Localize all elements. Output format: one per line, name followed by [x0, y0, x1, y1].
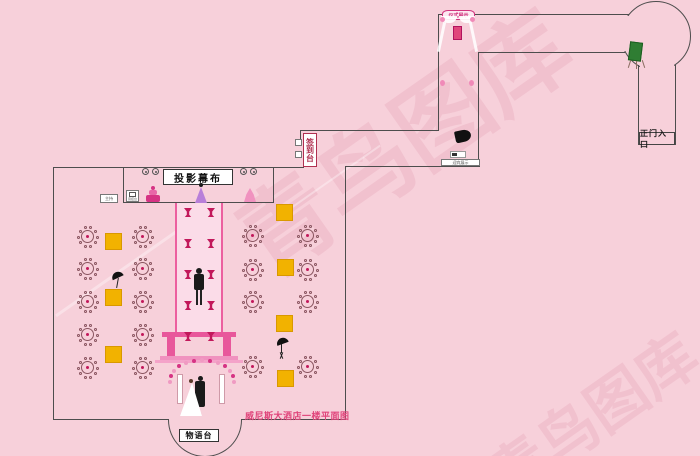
chair [151, 367, 154, 370]
chair [134, 306, 137, 309]
chair [134, 361, 137, 364]
chair [304, 310, 307, 313]
chair [77, 334, 80, 337]
chair [89, 310, 92, 313]
chair [151, 334, 154, 337]
arch-flower [184, 361, 188, 365]
chair [254, 278, 257, 281]
chair [259, 274, 262, 277]
flower-gate-pillar [167, 337, 175, 357]
chair [249, 259, 252, 262]
chair [96, 334, 99, 337]
main-entrance-label: 正门入口 [639, 132, 675, 145]
signin-corridor-bottom-wall [345, 166, 480, 167]
chair [139, 277, 142, 280]
chair [244, 306, 247, 309]
chair [89, 258, 92, 261]
sound-box-label: 音控台 [128, 197, 137, 201]
arch-flower [216, 361, 220, 365]
corridor-bottom-wall [478, 52, 625, 53]
chair [94, 273, 97, 276]
chair [261, 269, 264, 272]
chair [259, 360, 262, 363]
hall-right-wall [345, 167, 346, 420]
chair [297, 269, 300, 272]
chair [144, 343, 147, 346]
speaker-icon [240, 168, 247, 175]
chair [84, 258, 87, 261]
arch-flower [231, 374, 235, 378]
sofa-seat [105, 346, 122, 363]
vestibule-right-wall [478, 52, 479, 167]
chair [134, 339, 137, 342]
chair [132, 367, 135, 370]
chair [259, 295, 262, 298]
chair [249, 356, 252, 359]
hall-bottom-wall-left [53, 419, 169, 420]
chair [134, 262, 137, 265]
chair [244, 240, 247, 243]
chair [314, 274, 317, 277]
welcome-bar-label: 迎宾展示 [441, 159, 480, 166]
banquet-table [296, 224, 320, 248]
mc-box-label: 主持 [100, 194, 118, 203]
arch-flower [177, 364, 181, 368]
chair [149, 328, 152, 331]
chair [89, 324, 92, 327]
grand-piano-icon [454, 128, 472, 143]
chair [84, 357, 87, 360]
arch-flower [200, 358, 204, 362]
floor-plan-canvas: 青鸟图库 青鸟图库 投影幕布 签到台 正门入口 物语台 威尼斯大酒店一楼平面图 … [0, 0, 700, 456]
chair [314, 240, 317, 243]
chair [134, 230, 137, 233]
chair [309, 225, 312, 228]
chair [316, 366, 319, 369]
chair [244, 360, 247, 363]
chair [249, 278, 252, 281]
chair [79, 339, 82, 342]
sofa-seat [105, 233, 122, 250]
chair [134, 241, 137, 244]
chair [304, 356, 307, 359]
chair [254, 375, 257, 378]
chair [299, 263, 302, 266]
chair [79, 230, 82, 233]
chair [94, 295, 97, 298]
bow-decoration [469, 80, 474, 86]
chair [89, 226, 92, 229]
arch-flower [232, 380, 236, 384]
chair [94, 339, 97, 342]
sound-box: 音控台 [126, 190, 139, 202]
chair [149, 306, 152, 309]
banquet-table [131, 356, 155, 380]
bow-decoration [440, 80, 445, 86]
corridor-top-wall [478, 14, 629, 15]
chair [79, 262, 82, 265]
chair [134, 328, 137, 331]
chair [79, 372, 82, 375]
chair [304, 259, 307, 262]
chair [94, 230, 97, 233]
banquet-table [76, 290, 100, 314]
chair [304, 225, 307, 228]
chair [242, 366, 245, 369]
champagne-tower-icon [244, 188, 256, 202]
chair [314, 306, 317, 309]
chair [249, 225, 252, 228]
chair [309, 291, 312, 294]
chair [96, 367, 99, 370]
stage-left-wall [123, 167, 124, 203]
chair [149, 361, 152, 364]
chair [244, 371, 247, 374]
chair [96, 301, 99, 304]
chair [316, 301, 319, 304]
banquet-table [296, 355, 320, 379]
chair [132, 334, 135, 337]
chair [249, 291, 252, 294]
sofa-seat [105, 289, 122, 306]
stage-bride-gown [195, 187, 207, 203]
banquet-table [76, 225, 100, 249]
arch-pillar [219, 374, 225, 404]
chair [79, 361, 82, 364]
gate-step [155, 360, 243, 363]
chair [261, 366, 264, 369]
chair [139, 258, 142, 261]
banquet-table [241, 224, 265, 248]
chair [144, 277, 147, 280]
groom-figure-leg [200, 290, 202, 305]
chair [94, 372, 97, 375]
chair [314, 360, 317, 363]
banquet-table [76, 257, 100, 281]
chair [249, 310, 252, 313]
arch-flower [192, 359, 196, 363]
chair [89, 343, 92, 346]
chair [242, 269, 245, 272]
chair [96, 236, 99, 239]
chair [79, 241, 82, 244]
chair [249, 375, 252, 378]
chair [144, 357, 147, 360]
banquet-table [131, 290, 155, 314]
sofa-seat [276, 315, 293, 332]
chair [96, 268, 99, 271]
chair [259, 306, 262, 309]
arch-flower [168, 380, 172, 384]
chair [144, 245, 147, 248]
speaker-icon [152, 168, 159, 175]
chair [249, 244, 252, 247]
chair [309, 375, 312, 378]
sofa-seat [277, 370, 294, 387]
story-stage-label: 物语台 [179, 429, 219, 442]
chair [89, 357, 92, 360]
banquet-table [241, 355, 265, 379]
chair [144, 376, 147, 379]
chair [132, 268, 135, 271]
chair [139, 357, 142, 360]
entrance-right-wall [675, 65, 676, 145]
chair [84, 324, 87, 327]
chair [149, 262, 152, 265]
chair [254, 225, 257, 228]
chair [242, 301, 245, 304]
chair [259, 240, 262, 243]
chair [132, 236, 135, 239]
chair [77, 367, 80, 370]
chair [84, 310, 87, 313]
arch-flower [172, 369, 176, 373]
chair [151, 236, 154, 239]
watermark-text: 青鸟图库 [467, 309, 700, 456]
chair [77, 236, 80, 239]
chair [299, 360, 302, 363]
chair [149, 273, 152, 276]
chair [297, 366, 300, 369]
chair [139, 310, 142, 313]
chair [299, 274, 302, 277]
chair [309, 356, 312, 359]
arch-flower [228, 369, 232, 373]
chair [139, 291, 142, 294]
chair [77, 301, 80, 304]
arch-flower [169, 374, 173, 378]
hall-top-wall [53, 167, 304, 168]
chair [94, 262, 97, 265]
chair [254, 259, 257, 262]
chair [139, 343, 142, 346]
arch-bride-figure [189, 379, 193, 383]
banquet-table [241, 290, 265, 314]
chair [314, 229, 317, 232]
groom-figure-leg [196, 290, 198, 305]
chair [314, 263, 317, 266]
sofa-seat [276, 204, 293, 221]
chair [149, 339, 152, 342]
chair [254, 291, 257, 294]
banquet-table [131, 323, 155, 347]
banquet-table [131, 225, 155, 249]
chair [149, 295, 152, 298]
welcome-easel-board [628, 41, 643, 61]
banquet-table [241, 258, 265, 282]
chair [304, 278, 307, 281]
chair [244, 263, 247, 266]
chair [94, 328, 97, 331]
chair [304, 291, 307, 294]
chair [244, 274, 247, 277]
banquet-table [76, 323, 100, 347]
banquet-table [131, 257, 155, 281]
chair [261, 301, 264, 304]
chair [309, 259, 312, 262]
chair [304, 244, 307, 247]
chair [259, 263, 262, 266]
plan-title: 威尼斯大酒店一楼平面图 [245, 409, 350, 422]
chair [94, 361, 97, 364]
chair [254, 244, 257, 247]
projection-screen-label: 投影幕布 [163, 169, 233, 185]
chair [84, 226, 87, 229]
chair [139, 324, 142, 327]
chair [132, 301, 135, 304]
chair [299, 306, 302, 309]
chair [254, 356, 257, 359]
chair [144, 324, 147, 327]
chair [79, 328, 82, 331]
wedding-cake-icon [146, 186, 160, 202]
chair [79, 295, 82, 298]
signin-seat [295, 139, 302, 146]
hall-left-wall [53, 167, 54, 420]
bench-mark [452, 153, 457, 156]
chair [316, 235, 319, 238]
rotunda-left-opening [619, 16, 630, 51]
banquet-table [76, 356, 100, 380]
chair [79, 273, 82, 276]
chair [304, 375, 307, 378]
chair [139, 376, 142, 379]
signin-seat [295, 151, 302, 158]
chair [316, 269, 319, 272]
chair [244, 229, 247, 232]
banquet-table [296, 290, 320, 314]
easel-leg [628, 60, 631, 68]
chair [94, 306, 97, 309]
flower-gate-pillar [223, 337, 231, 357]
chair [89, 376, 92, 379]
easel-leg [636, 61, 637, 69]
chair [299, 240, 302, 243]
speaker-icon [142, 168, 149, 175]
chair [242, 235, 245, 238]
bow-decoration [440, 17, 445, 22]
chair [297, 235, 300, 238]
chair [299, 295, 302, 298]
arch-flower [223, 364, 227, 368]
chair [84, 291, 87, 294]
chair [84, 376, 87, 379]
chair [79, 306, 82, 309]
chair [84, 343, 87, 346]
chair [244, 295, 247, 298]
chair [259, 371, 262, 374]
chair [134, 273, 137, 276]
chair [144, 226, 147, 229]
chair [259, 229, 262, 232]
chair [149, 372, 152, 375]
chair [309, 244, 312, 247]
chair [144, 258, 147, 261]
stage-right-wall [273, 167, 274, 203]
chair [299, 371, 302, 374]
chair [89, 245, 92, 248]
chair [94, 241, 97, 244]
piano-bench [450, 151, 466, 158]
signin-desk: 签到台 [303, 133, 317, 167]
chair [84, 277, 87, 280]
chair [151, 301, 154, 304]
chair [314, 295, 317, 298]
arch-pillar [177, 374, 183, 404]
chair [84, 245, 87, 248]
bow-decoration [470, 17, 475, 22]
vestibule-left-wall [438, 14, 439, 131]
signin-corridor-top-wall [300, 130, 439, 131]
chair [77, 268, 80, 271]
chair [151, 268, 154, 271]
chair [134, 295, 137, 298]
chair [314, 371, 317, 374]
chair [144, 310, 147, 313]
chair [309, 310, 312, 313]
chair [149, 230, 152, 233]
groom-figure-body [194, 274, 204, 290]
ceremony-table [453, 26, 462, 40]
chair [144, 291, 147, 294]
chair [139, 226, 142, 229]
stage-bride-figure [199, 183, 203, 187]
chair [134, 372, 137, 375]
chair [89, 291, 92, 294]
chair [149, 241, 152, 244]
speaker-icon [250, 168, 257, 175]
chair [254, 310, 257, 313]
sofa-seat [277, 259, 294, 276]
chair [297, 301, 300, 304]
chair [89, 277, 92, 280]
chair [139, 245, 142, 248]
chair [299, 229, 302, 232]
curtain-drape [469, 22, 478, 52]
chair [261, 235, 264, 238]
banquet-table [296, 258, 320, 282]
chair [309, 278, 312, 281]
